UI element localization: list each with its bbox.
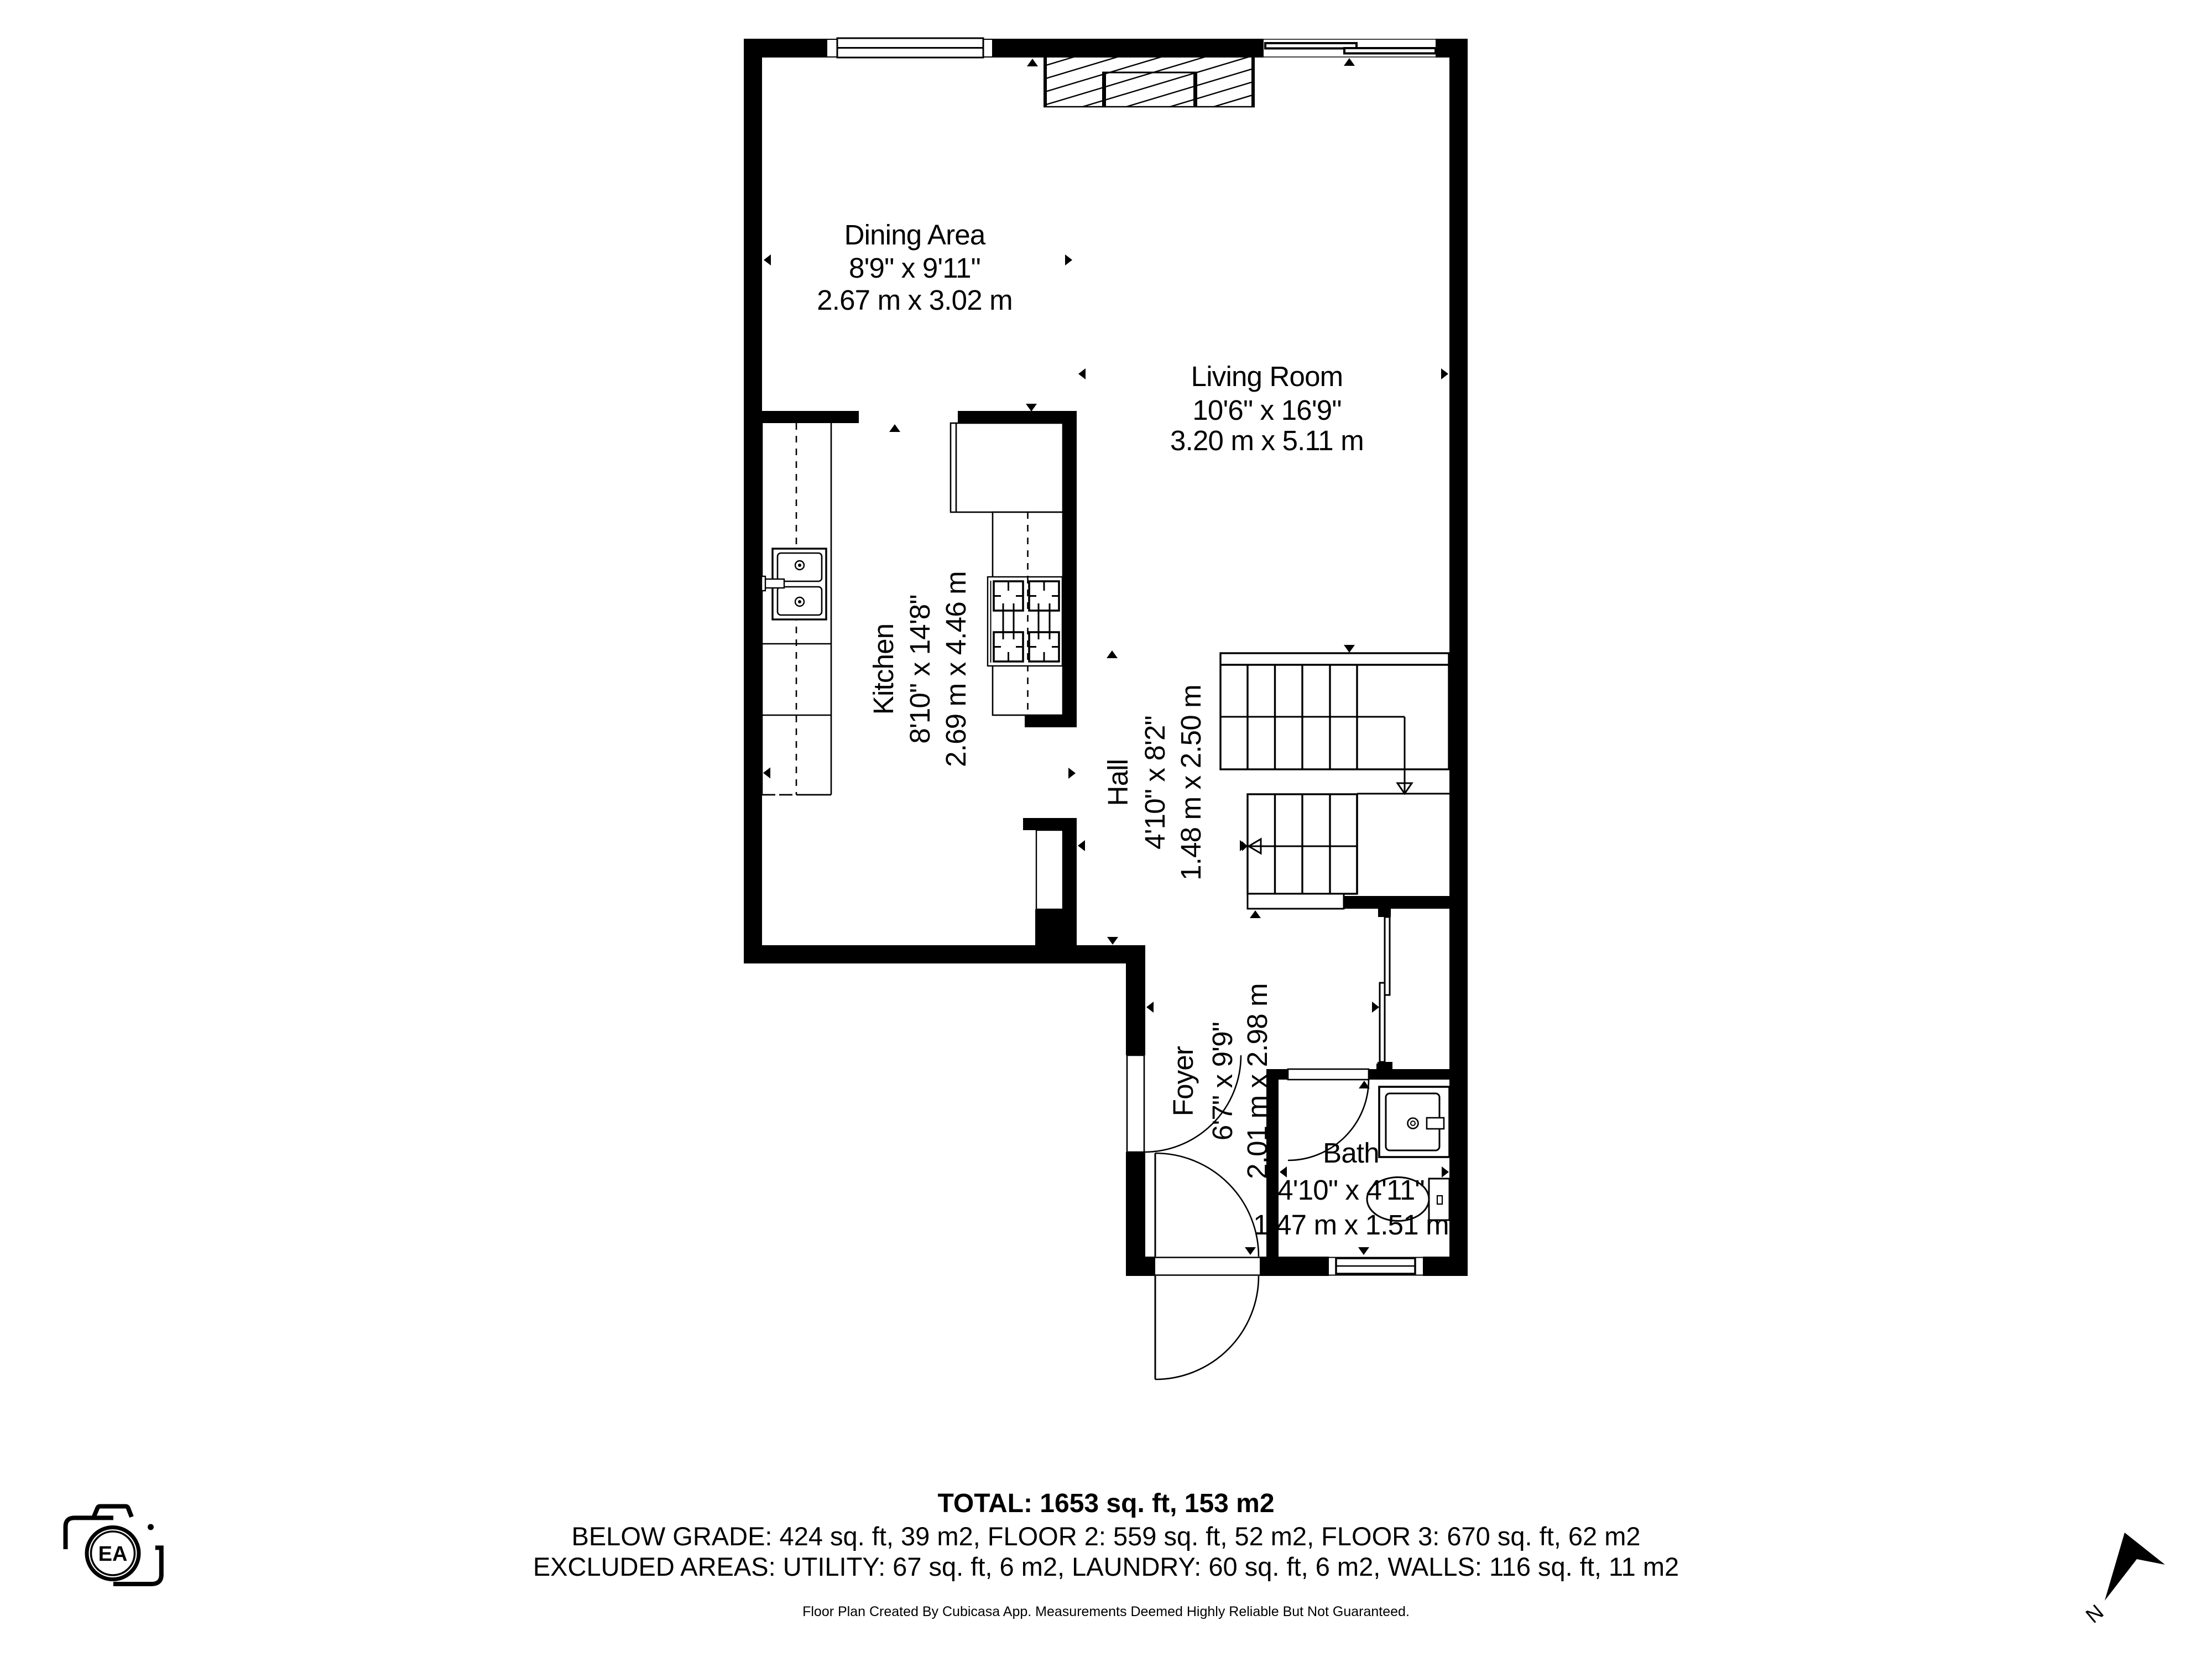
svg-text:8'10" x 14'8": 8'10" x 14'8"	[904, 595, 936, 743]
svg-text:4'10" x 8'2": 4'10" x 8'2"	[1139, 716, 1171, 850]
svg-text:1.48 m x 2.50 m: 1.48 m x 2.50 m	[1175, 685, 1207, 881]
svg-text:2.69 m x 4.46 m: 2.69 m x 4.46 m	[940, 571, 972, 767]
svg-text:4'10" x 4'11": 4'10" x 4'11"	[1277, 1174, 1425, 1206]
svg-text:Bath: Bath	[1323, 1137, 1379, 1169]
svg-text:BELOW GRADE: 424 sq. ft, 39 m2: BELOW GRADE: 424 sq. ft, 39 m2, FLOOR 2:…	[571, 1522, 1640, 1551]
svg-text:6'7" x 9'9": 6'7" x 9'9"	[1207, 1022, 1238, 1140]
svg-text:EXCLUDED AREAS: UTILITY: 67 sq: EXCLUDED AREAS: UTILITY: 67 sq. ft, 6 m2…	[533, 1552, 1679, 1581]
svg-text:Floor Plan Created By Cubicasa: Floor Plan Created By Cubicasa App. Meas…	[802, 1604, 1410, 1619]
svg-text:Hall: Hall	[1102, 759, 1134, 806]
svg-text:Living Room: Living Room	[1191, 361, 1343, 392]
svg-text:Foyer: Foyer	[1167, 1046, 1199, 1116]
svg-text:EA: EA	[98, 1543, 128, 1566]
svg-text:3.20 m x 5.11 m: 3.20 m x 5.11 m	[1170, 425, 1364, 456]
svg-text:Kitchen: Kitchen	[868, 624, 899, 715]
svg-text:1.47 m x 1.51 m: 1.47 m x 1.51 m	[1253, 1209, 1449, 1241]
svg-text:TOTAL: 1653 sq. ft, 153 m2: TOTAL: 1653 sq. ft, 153 m2	[937, 1489, 1274, 1518]
svg-text:2.01 m x 2.98 m: 2.01 m x 2.98 m	[1241, 983, 1273, 1179]
svg-text:2.67 m x 3.02 m: 2.67 m x 3.02 m	[817, 284, 1013, 316]
svg-text:10'6" x 16'9": 10'6" x 16'9"	[1192, 394, 1341, 426]
svg-text:Dining Area: Dining Area	[844, 219, 986, 251]
svg-text:8'9" x 9'11": 8'9" x 9'11"	[849, 252, 980, 284]
